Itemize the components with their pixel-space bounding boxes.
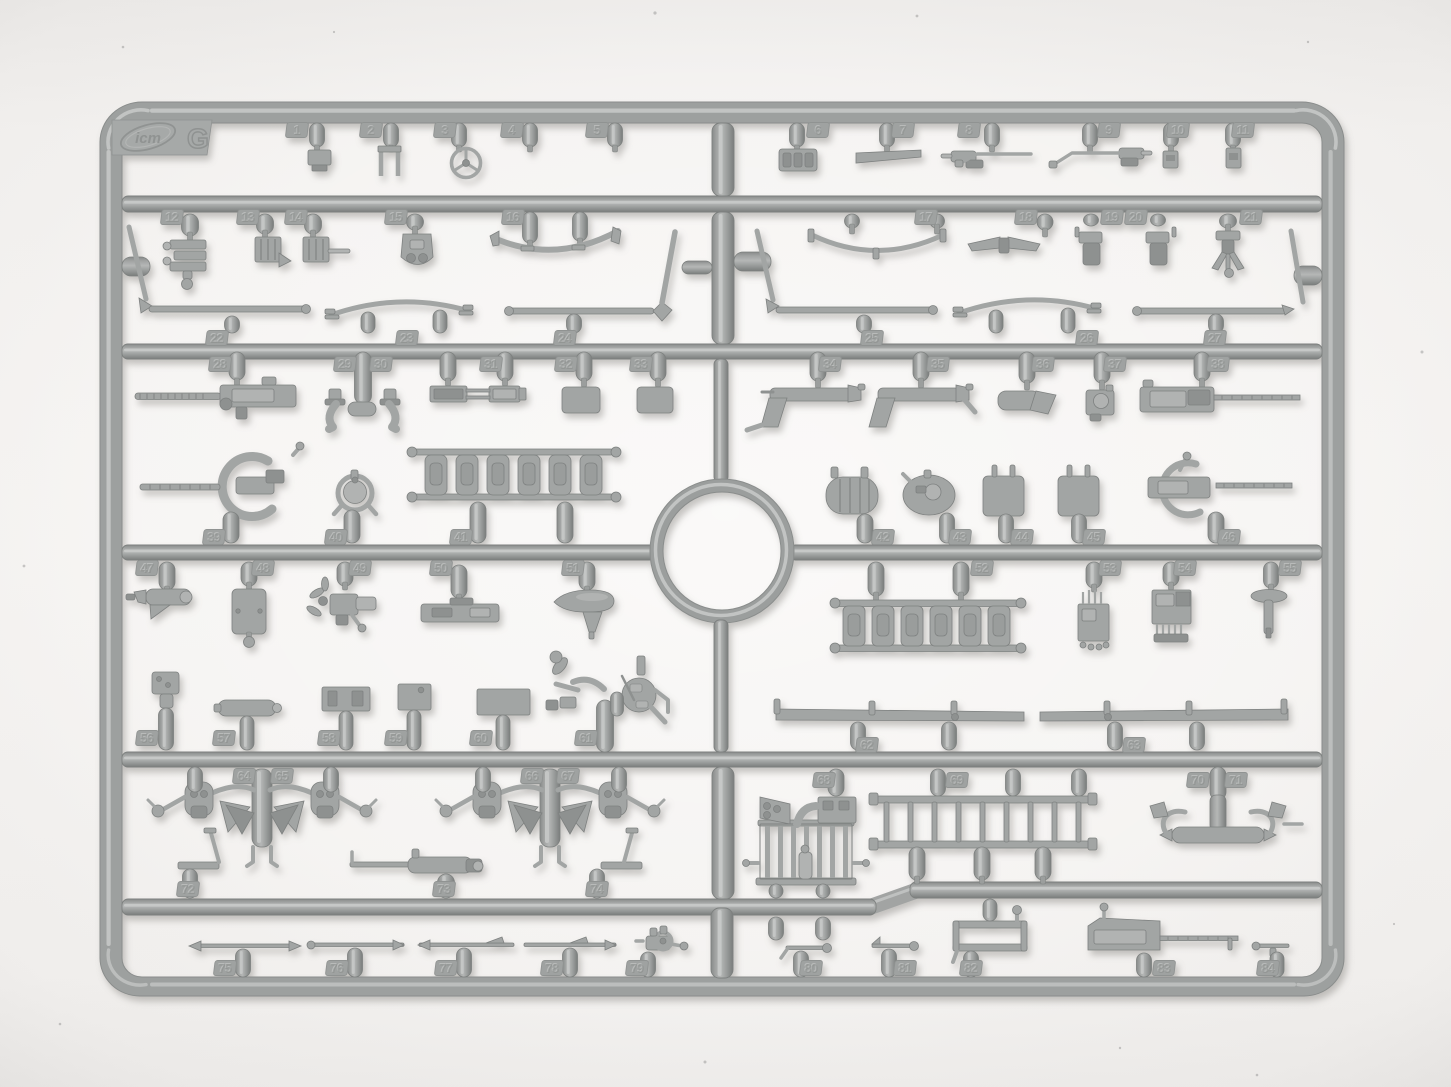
- svg-text:15: 15: [390, 210, 403, 225]
- svg-text:50: 50: [435, 561, 448, 576]
- svg-text:1: 1: [294, 123, 301, 138]
- svg-text:46: 46: [1223, 530, 1236, 545]
- svg-text:59: 59: [390, 731, 403, 746]
- svg-text:84: 84: [1262, 961, 1276, 976]
- svg-text:9: 9: [1106, 123, 1113, 138]
- svg-text:61: 61: [580, 731, 593, 746]
- svg-text:6: 6: [815, 123, 822, 138]
- svg-text:53: 53: [1104, 561, 1117, 576]
- svg-text:29: 29: [339, 357, 352, 372]
- svg-text:21: 21: [1245, 210, 1258, 225]
- svg-text:68: 68: [818, 773, 831, 788]
- svg-text:51: 51: [567, 561, 580, 576]
- svg-text:43: 43: [954, 530, 967, 545]
- svg-text:10: 10: [1172, 123, 1185, 138]
- svg-text:64: 64: [238, 769, 252, 784]
- svg-text:81: 81: [899, 961, 912, 976]
- svg-text:74: 74: [591, 882, 605, 897]
- svg-text:41: 41: [455, 530, 468, 545]
- svg-text:23: 23: [401, 331, 414, 346]
- svg-text:56: 56: [141, 731, 154, 746]
- svg-text:22: 22: [211, 331, 224, 346]
- svg-text:28: 28: [214, 357, 227, 372]
- svg-text:42: 42: [877, 530, 890, 545]
- svg-text:19: 19: [1106, 210, 1119, 225]
- svg-text:20: 20: [1130, 210, 1143, 225]
- svg-text:63: 63: [1128, 738, 1141, 753]
- svg-text:26: 26: [1081, 331, 1094, 346]
- svg-text:54: 54: [1179, 561, 1193, 576]
- svg-text:31: 31: [485, 357, 498, 372]
- svg-text:18: 18: [1020, 210, 1033, 225]
- svg-text:11: 11: [1237, 123, 1250, 138]
- svg-text:12: 12: [166, 210, 179, 225]
- svg-text:76: 76: [331, 961, 344, 976]
- svg-text:34: 34: [824, 357, 838, 372]
- svg-text:72: 72: [182, 882, 195, 897]
- svg-text:27: 27: [1209, 331, 1222, 346]
- svg-text:44: 44: [1016, 530, 1030, 545]
- svg-text:82: 82: [965, 961, 978, 976]
- svg-text:G: G: [187, 123, 209, 154]
- svg-text:24: 24: [559, 331, 573, 346]
- svg-text:35: 35: [932, 357, 945, 372]
- svg-text:25: 25: [866, 331, 879, 346]
- svg-text:48: 48: [257, 561, 270, 576]
- svg-text:65: 65: [276, 769, 289, 784]
- svg-text:7: 7: [900, 123, 907, 138]
- svg-text:57: 57: [218, 731, 231, 746]
- svg-text:83: 83: [1158, 961, 1171, 976]
- svg-text:75: 75: [219, 961, 232, 976]
- svg-text:30: 30: [375, 357, 388, 372]
- svg-text:3: 3: [442, 123, 449, 138]
- svg-text:78: 78: [546, 961, 559, 976]
- svg-text:47: 47: [141, 561, 154, 576]
- svg-text:66: 66: [526, 769, 539, 784]
- svg-text:69: 69: [951, 773, 964, 788]
- svg-text:60: 60: [475, 731, 488, 746]
- svg-text:45: 45: [1088, 530, 1101, 545]
- svg-text:33: 33: [635, 357, 648, 372]
- svg-text:70: 70: [1192, 773, 1205, 788]
- svg-text:52: 52: [976, 561, 989, 576]
- svg-text:39: 39: [208, 530, 221, 545]
- svg-text:40: 40: [330, 530, 343, 545]
- svg-text:62: 62: [861, 738, 874, 753]
- svg-text:32: 32: [560, 357, 573, 372]
- svg-text:16: 16: [507, 210, 520, 225]
- svg-text:79: 79: [631, 961, 644, 976]
- svg-text:71: 71: [1230, 773, 1243, 788]
- svg-text:67: 67: [562, 769, 575, 784]
- svg-text:37: 37: [1109, 357, 1122, 372]
- svg-text:2: 2: [368, 123, 375, 138]
- svg-text:38: 38: [1212, 357, 1225, 372]
- svg-text:5: 5: [594, 123, 601, 138]
- svg-text:icm: icm: [135, 130, 161, 147]
- svg-text:77: 77: [440, 961, 453, 976]
- svg-text:49: 49: [354, 561, 367, 576]
- svg-text:17: 17: [920, 210, 933, 225]
- svg-text:36: 36: [1037, 357, 1050, 372]
- svg-text:8: 8: [966, 123, 973, 138]
- svg-text:80: 80: [805, 961, 818, 976]
- svg-text:55: 55: [1284, 561, 1297, 576]
- svg-text:58: 58: [323, 731, 336, 746]
- svg-text:14: 14: [290, 210, 304, 225]
- svg-text:13: 13: [242, 210, 255, 225]
- svg-text:73: 73: [438, 882, 451, 897]
